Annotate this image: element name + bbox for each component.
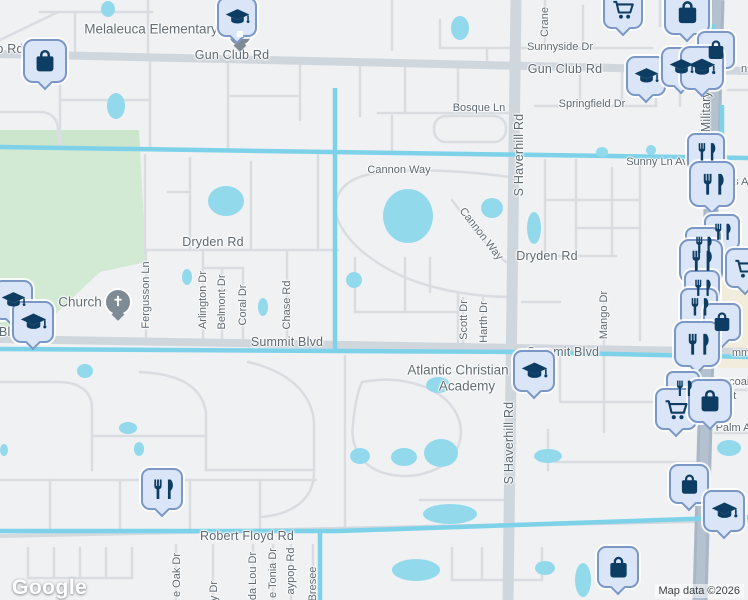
graduation-cap-icon <box>520 357 549 386</box>
shopping-bag-icon <box>709 309 735 335</box>
shopping-cart-icon <box>732 255 748 282</box>
map-canvas[interactable]: Melaleuca Elementaryb RdGun Club RdGun C… <box>0 0 748 600</box>
restaurant-icon <box>682 329 713 360</box>
shopping-bag-pin[interactable] <box>23 39 67 83</box>
shopping-bag-pin[interactable] <box>688 379 732 423</box>
shopping-bag-icon <box>676 471 703 498</box>
graduation-cap-icon <box>687 53 717 83</box>
graduation-cap-pin[interactable] <box>513 350 555 392</box>
graduation-cap-icon <box>19 308 48 337</box>
shopping-bag-pin[interactable] <box>597 546 639 588</box>
shopping-bag-icon <box>695 386 725 416</box>
map-pins <box>0 0 748 600</box>
church-poi-marker[interactable] <box>106 290 130 314</box>
google-logo[interactable]: Google <box>12 576 87 600</box>
map-attribution: Map data ©2026 <box>655 584 745 598</box>
restaurant-pin[interactable] <box>141 468 183 510</box>
restaurant-icon <box>697 169 728 200</box>
graduation-cap-icon <box>710 497 739 526</box>
restaurant-icon <box>148 475 177 504</box>
graduation-cap-icon <box>224 4 251 31</box>
shopping-cart-icon <box>662 395 691 424</box>
graduation-cap-pin[interactable] <box>12 301 54 343</box>
restaurant-icon <box>686 246 716 276</box>
graduation-cap-pin[interactable] <box>626 56 666 96</box>
restaurant-icon <box>693 139 719 165</box>
shopping-bag-icon <box>672 0 703 28</box>
graduation-cap-pin[interactable] <box>703 490 745 532</box>
shopping-bag-icon <box>30 46 60 76</box>
shopping-cart-icon <box>610 0 637 23</box>
restaurant-pin[interactable] <box>689 161 735 207</box>
shopping-bag-pin[interactable] <box>664 0 710 35</box>
shopping-bag-icon <box>604 553 633 582</box>
shopping-cart-pin[interactable] <box>725 248 748 288</box>
shopping-cart-pin[interactable] <box>603 0 643 29</box>
graduation-cap-icon <box>633 63 660 90</box>
church-poi-icon <box>107 291 129 313</box>
